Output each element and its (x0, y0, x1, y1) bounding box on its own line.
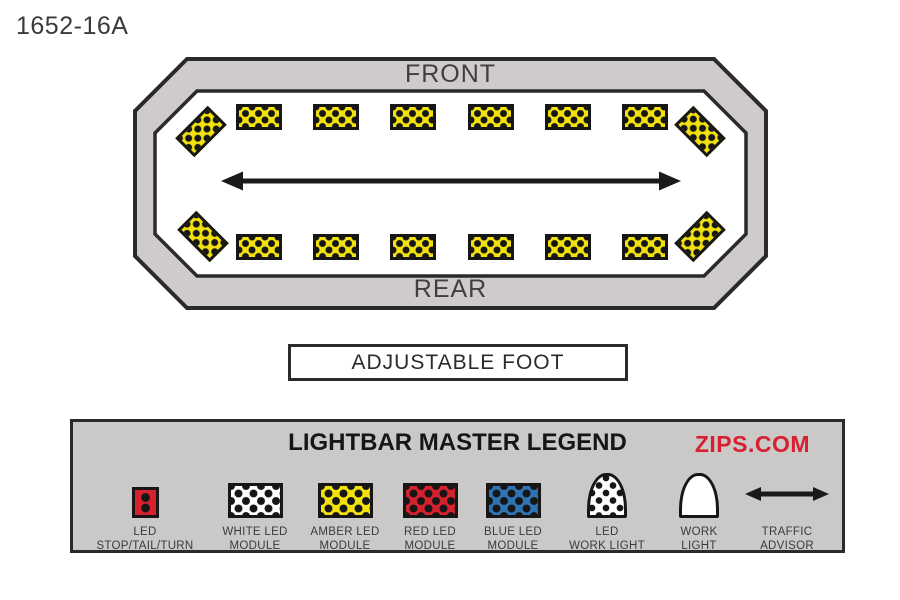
legend-item-label: MODULE (222, 539, 287, 553)
amber-led-module (545, 104, 591, 130)
legend-item-label: STOP/TAIL/TURN (96, 539, 193, 553)
legend-item-label: MODULE (484, 539, 542, 553)
legend-item-label: TRAFFIC (760, 525, 814, 539)
amber-led-module (390, 104, 436, 130)
lightbar-frame (133, 57, 768, 310)
legend-item-amber-led-module: AMBER LED MODULE (301, 472, 389, 553)
legend-item-blue-led-module: BLUE LED MODULE (471, 472, 555, 553)
amber-led-module (236, 234, 282, 260)
legend-item-label: BLUE LED (484, 525, 542, 539)
zips-com-brand: ZIPS.COM (695, 431, 810, 458)
amber-led-module (545, 234, 591, 260)
amber-led-module-icon (318, 483, 373, 518)
legend-item-label: LED (569, 525, 645, 539)
legend-items-row: LED STOP/TAIL/TURN WHITE LED MODULE (81, 472, 838, 553)
lightbar-diagram: FRONT REAR (133, 57, 768, 310)
red-led-module-icon (403, 483, 458, 518)
work-light-icon (679, 473, 719, 518)
legend-item-label: LIGHT (681, 539, 718, 553)
led-work-light-icon (587, 473, 627, 518)
amber-led-module (468, 234, 514, 260)
legend-item-traffic-advisor: TRAFFIC ADVISOR (739, 472, 835, 553)
legend-box: LIGHTBAR MASTER LEGEND ZIPS.COM LED STOP… (70, 419, 845, 553)
legend-item-red-led-module: RED LED MODULE (389, 472, 471, 553)
legend-item-label: AMBER LED (310, 525, 379, 539)
blue-led-module-icon (486, 483, 541, 518)
page-title: 1652-16A (16, 12, 128, 41)
legend-item-label: LED (96, 525, 193, 539)
amber-led-module (468, 104, 514, 130)
legend-item-label: WHITE LED (222, 525, 287, 539)
legend-item-label: RED LED (404, 525, 456, 539)
front-label: FRONT (133, 60, 768, 89)
legend-item-label: MODULE (310, 539, 379, 553)
legend-item-led-work-light: LED WORK LIGHT (555, 472, 659, 553)
front-module-row (236, 104, 668, 130)
amber-led-module (236, 104, 282, 130)
adjustable-foot-box: ADJUSTABLE FOOT (288, 344, 628, 381)
amber-led-module (390, 234, 436, 260)
legend-item-label: MODULE (404, 539, 456, 553)
legend-item-label: WORK (681, 525, 718, 539)
amber-led-module (313, 104, 359, 130)
legend-header: LIGHTBAR MASTER LEGEND ZIPS.COM (73, 422, 842, 458)
legend-item-label: WORK LIGHT (569, 539, 645, 553)
legend-item-led-stop-tail-turn: LED STOP/TAIL/TURN (81, 472, 209, 553)
rear-module-row (236, 234, 668, 260)
traffic-advisor-icon (745, 484, 829, 504)
led-stop-tail-turn-icon (132, 487, 159, 518)
adjustable-foot-label: ADJUSTABLE FOOT (352, 351, 565, 375)
legend-item-white-led-module: WHITE LED MODULE (209, 472, 301, 553)
amber-led-module (313, 234, 359, 260)
diagram-canvas: 1652-16A FRONT REAR (0, 0, 900, 600)
white-led-module-icon (228, 483, 283, 518)
amber-led-module (622, 234, 668, 260)
amber-led-module (622, 104, 668, 130)
rear-label: REAR (133, 275, 768, 304)
legend-item-work-light: WORK LIGHT (659, 472, 739, 553)
legend-item-label: ADVISOR (760, 539, 814, 553)
